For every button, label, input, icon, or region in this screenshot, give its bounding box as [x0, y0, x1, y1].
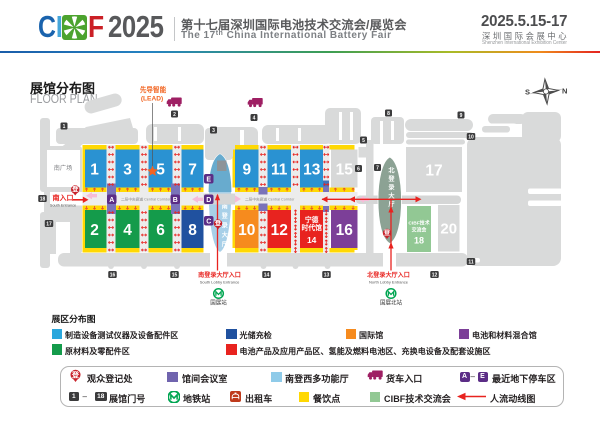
svg-text:7: 7 — [376, 165, 379, 171]
svg-text:北登录大厅入口: 北登录大厅入口 — [367, 271, 410, 279]
svg-text:厅: 厅 — [388, 201, 395, 209]
svg-text:2: 2 — [90, 222, 99, 239]
svg-text:5: 5 — [362, 138, 365, 144]
svg-text:10: 10 — [238, 222, 255, 239]
svg-text:二层中央廊道 Central Corridor: 二层中央廊道 Central Corridor — [121, 197, 171, 202]
svg-text:14: 14 — [307, 235, 317, 245]
svg-text:国展北站: 国展北站 — [380, 299, 403, 307]
svg-text:13: 13 — [324, 272, 330, 278]
svg-text:South Entrance: South Entrance — [50, 204, 76, 208]
svg-text:3: 3 — [212, 128, 215, 134]
svg-text:南登录大厅入口: 南登录大厅入口 — [198, 271, 241, 279]
svg-text:录: 录 — [222, 222, 228, 230]
svg-text:厅: 厅 — [222, 241, 228, 249]
svg-text:国展站: 国展站 — [210, 299, 227, 307]
svg-text:17: 17 — [425, 163, 442, 180]
svg-text:9: 9 — [242, 162, 251, 179]
svg-text:N: N — [562, 87, 567, 96]
svg-text:南广场: 南广场 — [54, 164, 73, 172]
svg-text:8: 8 — [188, 222, 197, 239]
svg-text:12: 12 — [271, 222, 288, 239]
svg-text:录: 录 — [388, 184, 395, 192]
svg-text:1: 1 — [90, 162, 99, 179]
svg-text:4: 4 — [123, 222, 132, 239]
svg-text:North Lobby Entrance: North Lobby Entrance — [369, 280, 409, 285]
svg-text:8: 8 — [387, 111, 390, 117]
svg-text:D: D — [206, 197, 211, 204]
svg-text:12: 12 — [432, 272, 438, 278]
svg-text:15: 15 — [336, 162, 354, 179]
svg-text:1: 1 — [63, 124, 66, 130]
svg-text:6: 6 — [156, 222, 165, 239]
svg-text:9: 9 — [460, 113, 463, 119]
svg-text:20: 20 — [440, 221, 457, 238]
svg-text:17: 17 — [46, 221, 52, 227]
svg-text:5: 5 — [156, 162, 165, 179]
svg-text:时代馆: 时代馆 — [302, 223, 323, 232]
svg-text:10: 10 — [468, 134, 474, 140]
svg-text:先导智能: 先导智能 — [140, 85, 167, 94]
svg-text:二层中央廊道 Central Corridor: 二层中央廊道 Central Corridor — [245, 197, 295, 202]
svg-text:交流会: 交流会 — [412, 227, 427, 234]
svg-text:E: E — [206, 176, 211, 183]
svg-text:18: 18 — [40, 196, 46, 202]
svg-text:北: 北 — [388, 167, 395, 175]
svg-text:宁德: 宁德 — [305, 215, 319, 224]
svg-text:6: 6 — [357, 166, 360, 172]
svg-text:18: 18 — [414, 236, 424, 246]
svg-text:7: 7 — [188, 162, 197, 179]
svg-text:11: 11 — [468, 259, 474, 265]
svg-text:16: 16 — [110, 272, 116, 278]
svg-text:11: 11 — [271, 162, 288, 179]
svg-text:14: 14 — [264, 272, 270, 278]
svg-text:CIBF技术: CIBF技术 — [408, 220, 429, 227]
svg-text:南入口: 南入口 — [53, 193, 74, 202]
svg-text:C: C — [206, 218, 211, 225]
svg-text:15: 15 — [172, 272, 178, 278]
svg-text:2: 2 — [173, 112, 176, 118]
svg-text:S: S — [525, 88, 530, 97]
svg-text:A: A — [109, 197, 114, 204]
svg-text:16: 16 — [336, 222, 354, 239]
svg-text:13: 13 — [303, 162, 321, 179]
svg-text:(LEAD): (LEAD) — [141, 95, 163, 102]
svg-text:登: 登 — [221, 212, 229, 220]
svg-text:3: 3 — [123, 162, 132, 179]
svg-text:4: 4 — [253, 115, 256, 121]
svg-text:大: 大 — [222, 231, 228, 239]
svg-text:B: B — [173, 197, 178, 204]
svg-text:South Lobby Entrance: South Lobby Entrance — [200, 280, 240, 285]
svg-text:登: 登 — [387, 175, 395, 183]
